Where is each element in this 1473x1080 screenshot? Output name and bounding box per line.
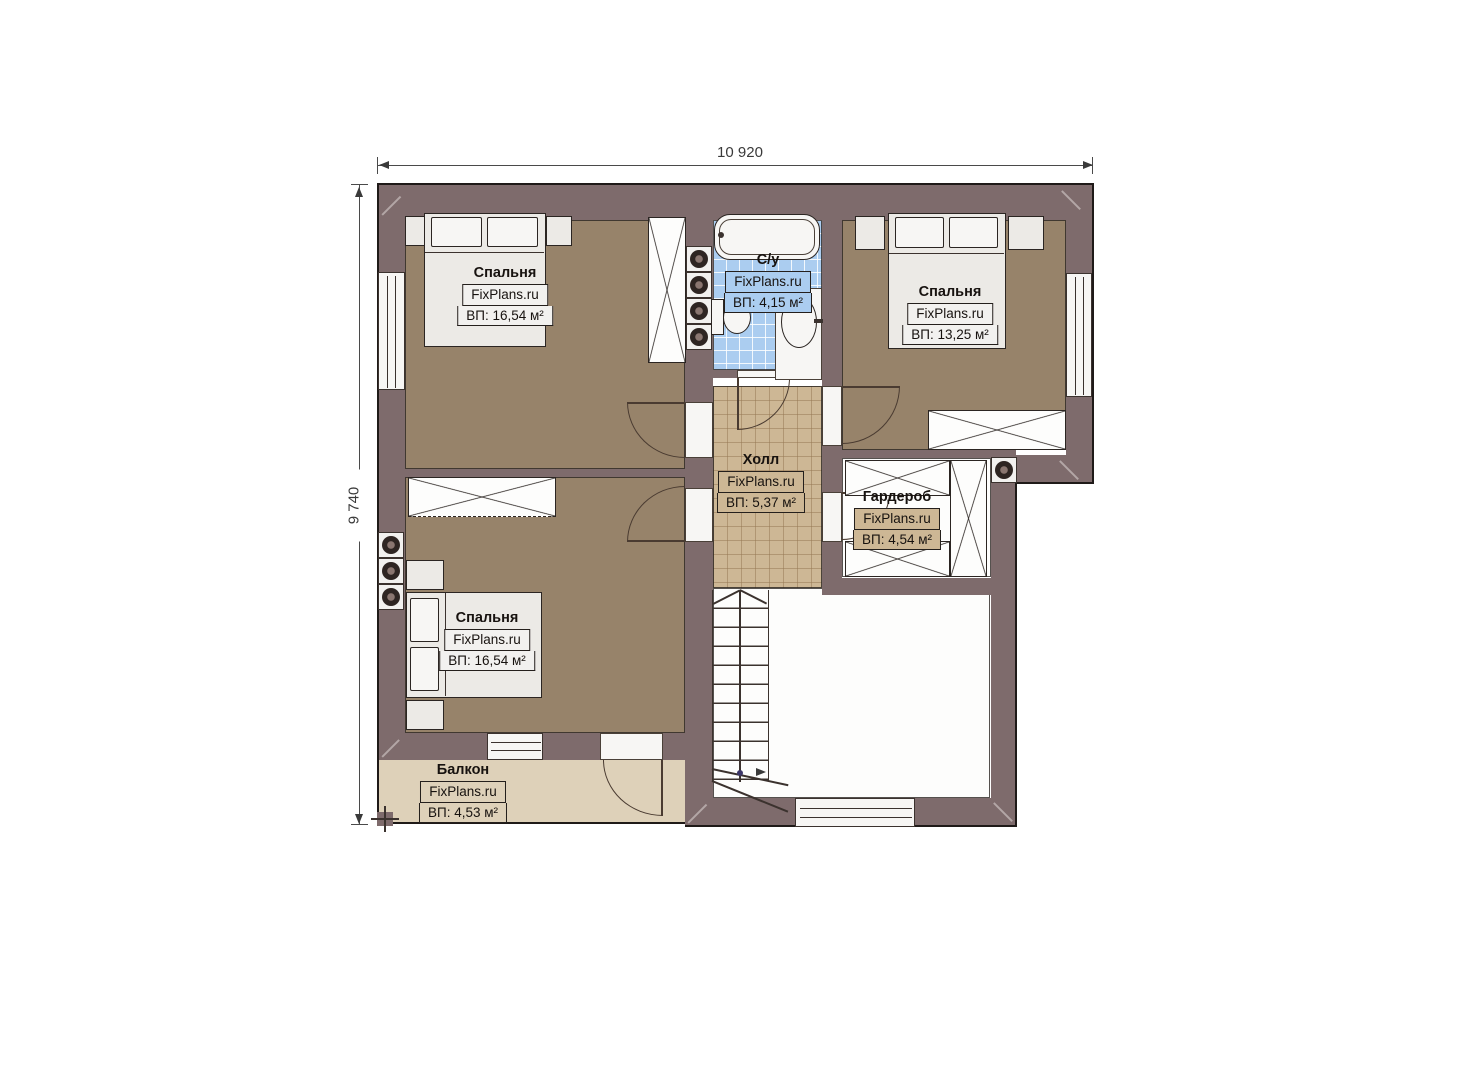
room-name: Гардероб	[863, 489, 932, 505]
nightstand	[1008, 216, 1044, 250]
dimension-tick	[377, 157, 378, 174]
room-name: Спальня	[474, 265, 537, 281]
vent-circle-glyph	[382, 536, 400, 554]
room-label-bathroom: С/у FixPlans.ru ВП: 4,15 м²	[724, 252, 812, 313]
wall-wardrobe-bottom	[822, 578, 991, 595]
stairs-center-rail	[739, 590, 741, 782]
door-leaf	[661, 760, 663, 816]
wall-bathroom-bottom-left	[713, 370, 737, 378]
room-name: Спальня	[919, 284, 982, 300]
nightstand	[405, 216, 425, 246]
window-frame-line	[1083, 277, 1084, 395]
dimension-arrow-up	[355, 187, 363, 197]
vent-circle	[686, 246, 712, 272]
vent-circle	[378, 558, 404, 584]
floor-plan-canvas: Спальня FixPlans.ru ВП: 16,54 м² С/у Fix…	[0, 0, 1473, 1080]
room-name: Спальня	[456, 610, 519, 626]
room-name: Холл	[743, 452, 779, 468]
vent-circle-glyph	[690, 302, 708, 320]
window-frame-line	[395, 276, 396, 388]
vent-circle	[991, 457, 1017, 483]
room-name: С/у	[757, 252, 780, 268]
window-stairwell	[795, 798, 915, 827]
vent-circle	[378, 584, 404, 610]
brand-tag: FixPlans.ru	[420, 781, 506, 803]
wardrobe-unit	[928, 410, 1066, 450]
area-tag: ВП: 5,37 м²	[717, 493, 805, 514]
window-frame-line	[800, 808, 912, 809]
window-right-wall	[1066, 273, 1092, 397]
pillow	[487, 217, 538, 247]
dimension-tick	[351, 824, 368, 825]
nightstand	[406, 700, 444, 730]
wall-center-lower	[685, 542, 713, 798]
area-tag: ВП: 13,25 м²	[902, 325, 998, 346]
dimension-label-height: 9 740	[346, 470, 363, 542]
window-frame-line	[491, 750, 541, 751]
vent-circle-glyph	[995, 461, 1013, 479]
room-label-bedroom-bottom-left: Спальня FixPlans.ru ВП: 16,54 м²	[439, 610, 535, 671]
dimension-arrow-down	[355, 814, 363, 824]
wall-step	[1016, 455, 1092, 483]
wall-center-mid	[685, 458, 713, 488]
room-label-bedroom-top-right: Спальня FixPlans.ru ВП: 13,25 м²	[902, 284, 998, 345]
wall-right-lower	[991, 483, 1016, 826]
door-jamb-wardrobe-room	[822, 492, 842, 542]
vent-circle-glyph	[690, 276, 708, 294]
window-left-wall	[378, 272, 405, 390]
bathtub-inner	[719, 219, 815, 255]
area-tag: ВП: 4,53 м²	[419, 803, 507, 824]
nightstand	[855, 216, 885, 250]
window-frame-line	[800, 817, 912, 818]
room-name: Балкон	[437, 762, 489, 778]
nightstand	[406, 560, 444, 590]
brand-tag: FixPlans.ru	[462, 284, 548, 306]
pillow	[949, 217, 998, 248]
area-tag: ВП: 4,54 м²	[853, 530, 941, 551]
room-label-balcony: Балкон FixPlans.ru ВП: 4,53 м²	[419, 762, 507, 823]
wall-hall-right-a	[822, 378, 842, 386]
vent-circle	[686, 298, 712, 324]
wardrobe-unit	[950, 460, 987, 577]
door-jamb-bedroom-bottom-left	[685, 488, 713, 542]
dimension-line-horizontal	[378, 165, 1093, 166]
window-frame-line	[491, 742, 541, 743]
brand-tag: FixPlans.ru	[718, 471, 804, 493]
wall-bathroom-right	[822, 220, 842, 378]
door-leaf	[842, 386, 900, 388]
vent-circle-glyph	[690, 250, 708, 268]
pillow	[431, 217, 482, 247]
sink-tap-icon	[814, 319, 823, 323]
room-label-wardrobe-room: Гардероб FixPlans.ru ВП: 4,54 м²	[853, 489, 941, 550]
room-label-bedroom-top-left: Спальня FixPlans.ru ВП: 16,54 м²	[457, 265, 553, 326]
dimension-tick	[351, 184, 368, 185]
corner-cross	[384, 806, 386, 832]
vent-circle-glyph	[382, 588, 400, 606]
blanket-line	[425, 252, 544, 253]
brand-tag: FixPlans.ru	[444, 629, 530, 651]
door-jamb-bedroom-top-right	[822, 386, 842, 446]
area-tag: ВП: 16,54 м²	[439, 651, 535, 672]
area-tag: ВП: 16,54 м²	[457, 306, 553, 327]
wall-hall-right-b	[822, 446, 842, 492]
window-frame-line	[1075, 277, 1076, 395]
dimension-arrow-right	[1083, 161, 1093, 169]
blanket-line	[889, 253, 1004, 254]
stairs-walkline-dot	[737, 770, 743, 776]
vent-circle-glyph	[382, 562, 400, 580]
brand-tag: FixPlans.ru	[725, 271, 811, 293]
window-frame-line	[387, 276, 388, 388]
dimension-arrow-left	[379, 161, 389, 169]
wall-partition-left-bedrooms	[405, 469, 685, 477]
room-label-hall: Холл FixPlans.ru ВП: 5,37 м²	[717, 452, 805, 513]
wall-partition-wardrobe	[842, 450, 1016, 458]
wardrobe-unit	[408, 477, 556, 517]
vent-circle-glyph	[690, 328, 708, 346]
door-leaf	[737, 378, 739, 430]
perimeter-line-top	[377, 183, 1094, 185]
perimeter-line-step	[1015, 482, 1094, 484]
wardrobe-unit	[648, 217, 686, 363]
vent-circle	[686, 272, 712, 298]
door-jamb-bedroom-top-left	[685, 402, 713, 458]
pillow	[410, 647, 439, 691]
nightstand	[546, 216, 572, 246]
perimeter-line-left	[377, 183, 379, 760]
stairs-walkline-arrow	[756, 768, 766, 776]
door-jamb-balcony	[600, 733, 663, 760]
pillow	[410, 598, 439, 642]
brand-tag: FixPlans.ru	[907, 303, 993, 325]
vent-circle	[378, 532, 404, 558]
area-tag: ВП: 4,15 м²	[724, 293, 812, 314]
dimension-label-width: 10 920	[700, 144, 780, 161]
perimeter-line-right-lower	[1015, 482, 1017, 827]
pillow	[895, 217, 944, 248]
perimeter-line-right-upper	[1092, 183, 1094, 484]
door-leaf	[627, 540, 685, 542]
window-bedroom-balcony	[487, 733, 543, 760]
faucet-icon	[718, 232, 724, 238]
door-leaf	[627, 402, 685, 404]
brand-tag: FixPlans.ru	[854, 508, 940, 530]
vent-circle	[686, 324, 712, 350]
